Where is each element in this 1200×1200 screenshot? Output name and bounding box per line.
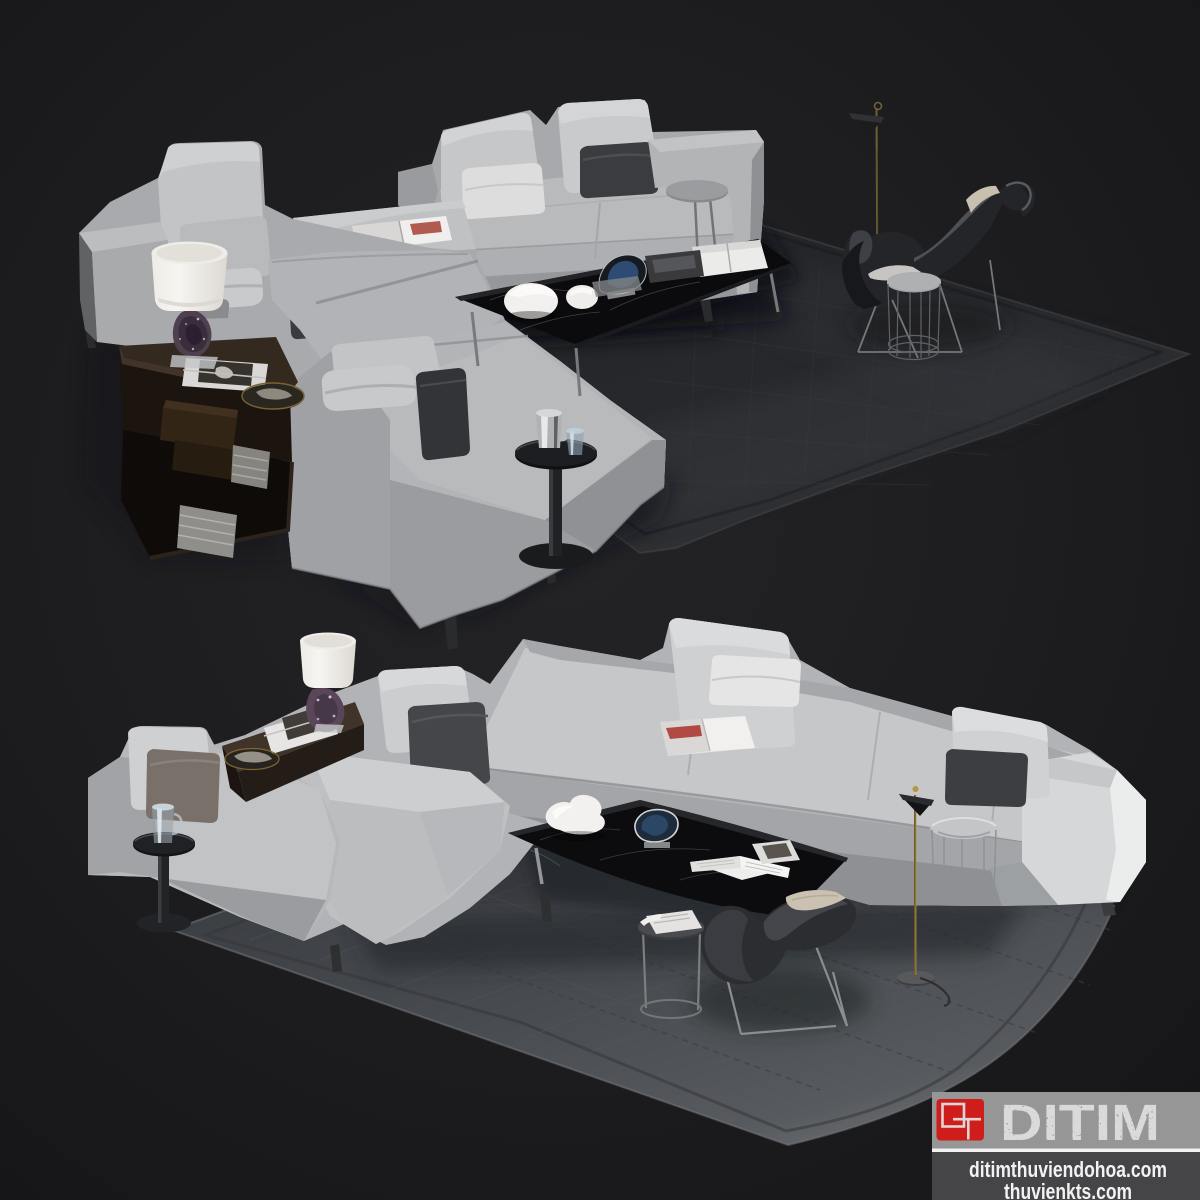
svg-text:thuvienkts.com: thuvienkts.com (1004, 1179, 1132, 1200)
svg-text:DITIM: DITIM (1000, 1094, 1160, 1151)
